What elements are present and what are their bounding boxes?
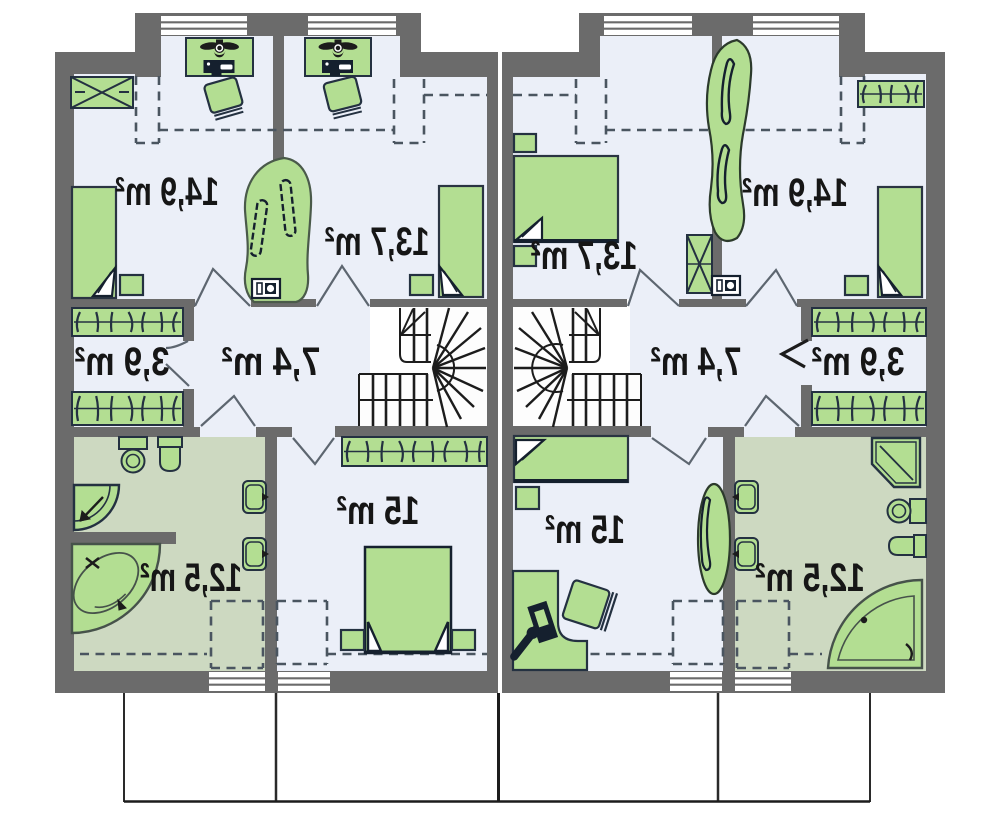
svg-text:12,5 m²: 12,5 m² xyxy=(140,556,242,600)
svg-text:14,9 m²: 14,9 m² xyxy=(742,170,848,215)
svg-text:14,9 m²: 14,9 m² xyxy=(115,169,219,214)
svg-text:13,7 m²: 13,7 m² xyxy=(324,219,429,264)
svg-text:15 m²: 15 m² xyxy=(545,507,625,552)
svg-text:7,4 m²: 7,4 m² xyxy=(222,338,321,383)
svg-text:12,5 m²: 12,5 m² xyxy=(755,555,865,600)
svg-text:15 m²: 15 m² xyxy=(337,487,420,532)
svg-text:7,4 m²: 7,4 m² xyxy=(651,338,742,384)
svg-text:3,9 m²: 3,9 m² xyxy=(74,339,169,384)
svg-text:13,7 m²: 13,7 m² xyxy=(530,233,637,278)
svg-text:3,9 m²: 3,9 m² xyxy=(812,339,905,384)
